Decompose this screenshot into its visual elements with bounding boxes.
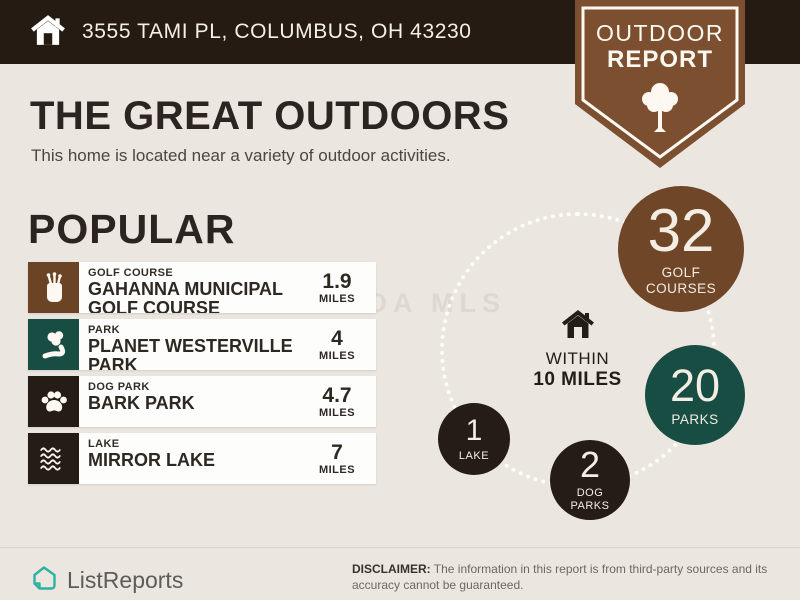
home-icon xyxy=(30,14,66,51)
home-icon-center xyxy=(561,327,595,344)
popular-list: GOLF COURSE GAHANNA MUNICIPAL GOLF COURS… xyxy=(28,262,376,484)
item-name: GAHANNA MUNICIPAL GOLF COURSE xyxy=(88,280,298,313)
footer-divider xyxy=(0,547,800,548)
item-distance-unit: MILES xyxy=(319,464,355,476)
badge-line2: REPORT xyxy=(575,46,745,74)
item-distance-unit: MILES xyxy=(319,407,355,419)
golf-bag-icon xyxy=(28,262,79,313)
stat-count: 2 xyxy=(580,447,600,483)
badge-line1: OUTDOOR xyxy=(575,20,745,47)
popular-heading: POPULAR xyxy=(28,206,235,253)
page-subtitle: This home is located near a variety of o… xyxy=(31,146,451,166)
item-distance: 7 xyxy=(331,442,343,464)
outdoor-report-badge: OUTDOOR REPORT xyxy=(575,0,745,172)
item-distance: 4.7 xyxy=(322,385,351,407)
item-distance: 1.9 xyxy=(322,271,351,293)
brand-name: ListReports xyxy=(67,567,183,594)
stat-bubble-dog-parks: 2 DOG PARKS xyxy=(550,440,630,520)
disclaimer-label: DISCLAIMER: xyxy=(352,562,431,576)
tree-icon xyxy=(637,80,683,139)
property-address: 3555 TAMI PL, COLUMBUS, OH 43230 xyxy=(82,20,472,44)
park-tree-icon xyxy=(28,319,79,370)
item-distance-unit: MILES xyxy=(319,293,355,305)
outdoor-report-page: CLOA MLS 3555 TAMI PL, COLUMBUS, OH 4323… xyxy=(0,0,800,600)
item-distance-unit: MILES xyxy=(319,350,355,362)
paw-icon xyxy=(28,376,79,427)
list-item-park: PARK PLANET WESTERVILLE PARK 4 MILES xyxy=(28,319,376,370)
item-category: DOG PARK xyxy=(88,381,298,393)
item-distance: 4 xyxy=(331,328,343,350)
miles-label: 10 MILES xyxy=(505,369,650,391)
item-category: PARK xyxy=(88,324,298,336)
stat-label: LAKE xyxy=(459,450,489,463)
item-category: LAKE xyxy=(88,438,298,450)
item-name: PLANET WESTERVILLE PARK xyxy=(88,337,298,370)
page-title: THE GREAT OUTDOORS xyxy=(30,94,509,139)
stat-count: 1 xyxy=(466,416,483,446)
stat-label: GOLF COURSES xyxy=(636,265,726,296)
radius-center: WITHIN 10 MILES xyxy=(505,308,650,391)
listreports-brand: ListReports xyxy=(30,564,183,597)
stat-bubble-golf-courses: 32 GOLF COURSES xyxy=(618,186,744,312)
disclaimer: DISCLAIMER: The information in this repo… xyxy=(352,562,792,594)
stat-count: 32 xyxy=(648,201,715,261)
item-name: BARK PARK xyxy=(88,394,298,413)
list-item-lake: LAKE MIRROR LAKE 7 MILES xyxy=(28,433,376,484)
stat-count: 20 xyxy=(670,363,720,408)
list-item-golf-course: GOLF COURSE GAHANNA MUNICIPAL GOLF COURS… xyxy=(28,262,376,313)
stat-bubble-parks: 20 PARKS xyxy=(645,345,745,445)
stat-label: DOG PARKS xyxy=(567,487,613,512)
within-label: WITHIN xyxy=(505,349,650,369)
listreports-logo-icon xyxy=(30,564,58,597)
list-item-dog-park: DOG PARK BARK PARK 4.7 MILES xyxy=(28,376,376,427)
item-category: GOLF COURSE xyxy=(88,267,298,279)
stat-label: PARKS xyxy=(671,412,718,428)
waves-icon xyxy=(28,433,79,484)
item-name: MIRROR LAKE xyxy=(88,451,298,470)
stat-bubble-lake: 1 LAKE xyxy=(438,403,510,475)
